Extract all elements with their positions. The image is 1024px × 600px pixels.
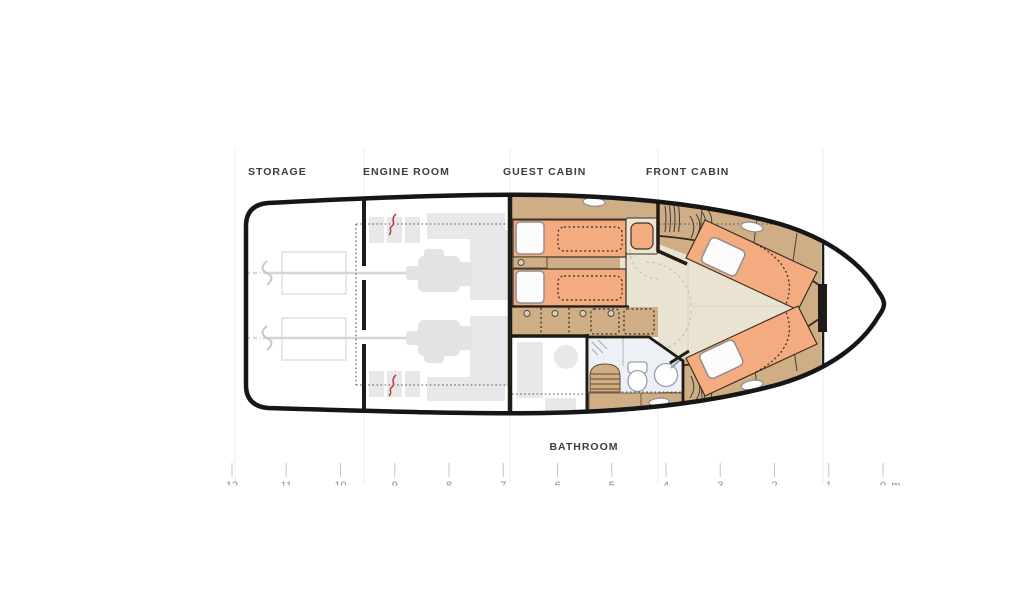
ruler-number: 6: [554, 480, 560, 492]
drawer-knob: [608, 311, 614, 317]
ruler-number: 11: [281, 480, 292, 492]
ruler-number: 10: [334, 480, 346, 492]
label-storage: STORAGE: [248, 166, 307, 178]
equipment-box: [387, 371, 402, 397]
fuel-tank: [470, 316, 508, 386]
vanity-steps: [590, 364, 620, 392]
equipment-box: [369, 217, 384, 243]
ruler-scale: 1211109876543210m: [226, 463, 901, 492]
ruler-number: 1: [826, 480, 832, 492]
fuel-tank: [470, 230, 508, 300]
pillow: [516, 271, 544, 303]
drawer-knob: [580, 311, 586, 317]
ruler-number: 5: [609, 480, 615, 492]
ruler-number: 2: [771, 480, 777, 492]
equipment-box: [405, 371, 420, 397]
ruler-number: 9: [392, 480, 398, 492]
pillow: [516, 222, 544, 254]
ruler-number: 0: [880, 480, 886, 492]
equipment-box: [387, 217, 402, 243]
equipment-box: [405, 217, 420, 243]
label-front-cabin: FRONT CABIN: [646, 166, 729, 178]
utility-box: [517, 342, 543, 398]
label-engine-room: ENGINE ROOM: [363, 166, 450, 178]
drawer-knob: [552, 311, 558, 317]
floorplan-canvas: STORAGE ENGINE ROOM GUEST CABIN FRONT CA…: [0, 0, 1024, 600]
boat-floorplan-page: STORAGE ENGINE ROOM GUEST CABIN FRONT CA…: [0, 0, 1024, 600]
equipment-box: [369, 371, 384, 397]
ruler-number: 8: [446, 480, 452, 492]
ruler-number: 7: [500, 480, 506, 492]
ruler-number: 12: [226, 480, 238, 492]
label-bathroom: BATHROOM: [549, 441, 618, 453]
anchor-locker-door: [818, 284, 827, 332]
nightstand-knob: [518, 260, 524, 266]
ruler-number: 3: [717, 480, 723, 492]
utility-circle: [554, 345, 578, 369]
label-guest-cabin: GUEST CABIN: [503, 166, 586, 178]
ruler-unit: m: [891, 480, 900, 492]
ruler-number: 4: [663, 480, 669, 492]
sink-basin: [631, 223, 653, 249]
toilet-icon: [628, 371, 647, 392]
drawer-knob: [524, 311, 530, 317]
sink-icon: [655, 364, 678, 387]
